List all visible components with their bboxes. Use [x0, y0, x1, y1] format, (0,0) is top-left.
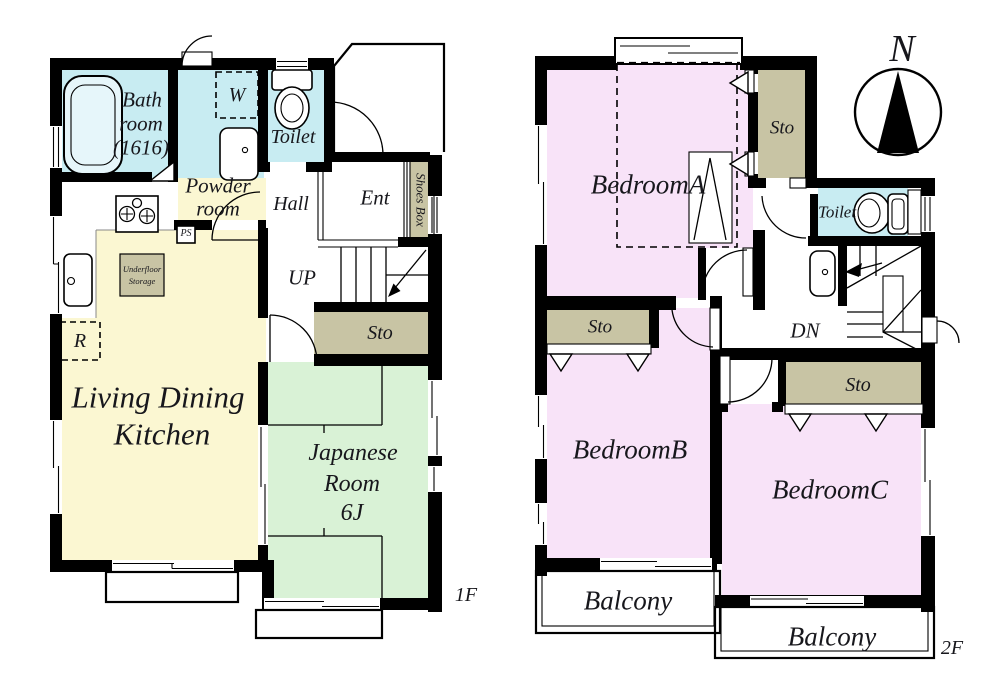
bay-window	[615, 38, 742, 64]
label-toilet-1f: Toilet	[271, 127, 316, 147]
label-japanese-line2: Room	[324, 472, 380, 496]
stairs-door-arc	[937, 321, 959, 343]
label-sto-1f: Sto	[367, 323, 393, 343]
north-compass-icon	[855, 69, 941, 155]
label-bathroom-line3: (1616)	[113, 138, 169, 159]
toilet2f-cabinet	[908, 190, 921, 234]
powder-sink-icon	[220, 128, 258, 180]
label-toilet-2f: Toilet	[818, 204, 856, 221]
bedroom-a-door-leaf	[743, 248, 753, 296]
label-powder-line2: room	[196, 199, 240, 220]
label-underfloor-line2: Storage	[129, 277, 155, 286]
back-door-leaf	[182, 52, 212, 66]
floorplan-page: Bath room (1616) Powder room Toilet Hall…	[0, 0, 1000, 695]
label-washer: W	[229, 85, 246, 105]
label-hall: Hall	[273, 194, 309, 214]
bedroom-c-door-arc	[728, 358, 772, 402]
label-sto-a: Sto	[770, 119, 794, 138]
stairs-1f	[341, 247, 428, 302]
label-japanese-line1: Japanese	[308, 441, 397, 465]
label-shoes-box: Shoes Box	[415, 173, 428, 227]
label-floor-1f: 1F	[455, 585, 477, 605]
label-floor-2f: 2F	[941, 638, 963, 658]
label-ldk-line1: Living Dining	[71, 382, 244, 413]
label-entrance: Ent	[360, 188, 389, 209]
stairs-door-leaf	[922, 317, 937, 343]
toilet1f-bowl-icon	[275, 87, 309, 129]
bedroom-c-door-leaf	[720, 356, 730, 404]
label-powder-line1: Powder	[185, 176, 250, 197]
label-bedroom-a: BedroomA	[591, 172, 705, 199]
toilet2f-door-arc	[762, 196, 806, 238]
label-japanese-line3: 6J	[341, 501, 364, 525]
label-refrigerator: R	[74, 331, 86, 351]
ldk-door-arc	[270, 315, 317, 362]
bedroom-b-door-leaf	[710, 308, 720, 350]
label-bedroom-b: BedroomB	[573, 437, 687, 464]
label-up: UP	[288, 268, 316, 289]
label-ldk-line2: Kitchen	[114, 419, 210, 450]
entrance-porch-outline	[334, 44, 444, 152]
label-bathroom-line2: room	[119, 114, 163, 135]
label-sto-b: Sto	[588, 318, 612, 337]
stairs-2f	[847, 246, 921, 350]
label-dn: DN	[790, 321, 819, 342]
label-pipe-space: PS	[180, 229, 191, 239]
entrance-door-arc	[330, 102, 383, 155]
terrace-japanese	[256, 610, 382, 638]
toilet2f-tank-icon	[888, 194, 908, 234]
label-balcony-b: Balcony	[584, 588, 672, 615]
terrace-ldk	[106, 572, 238, 602]
label-compass-north: N	[889, 30, 914, 68]
label-underfloor-line1: Underfloor	[123, 265, 161, 274]
toilet2f-door-leaf	[790, 178, 806, 188]
label-bathroom-line1: Bath	[122, 90, 162, 111]
label-sto-c: Sto	[845, 375, 871, 395]
label-balcony-c: Balcony	[788, 624, 876, 651]
label-bedroom-c: BedroomC	[772, 477, 888, 504]
